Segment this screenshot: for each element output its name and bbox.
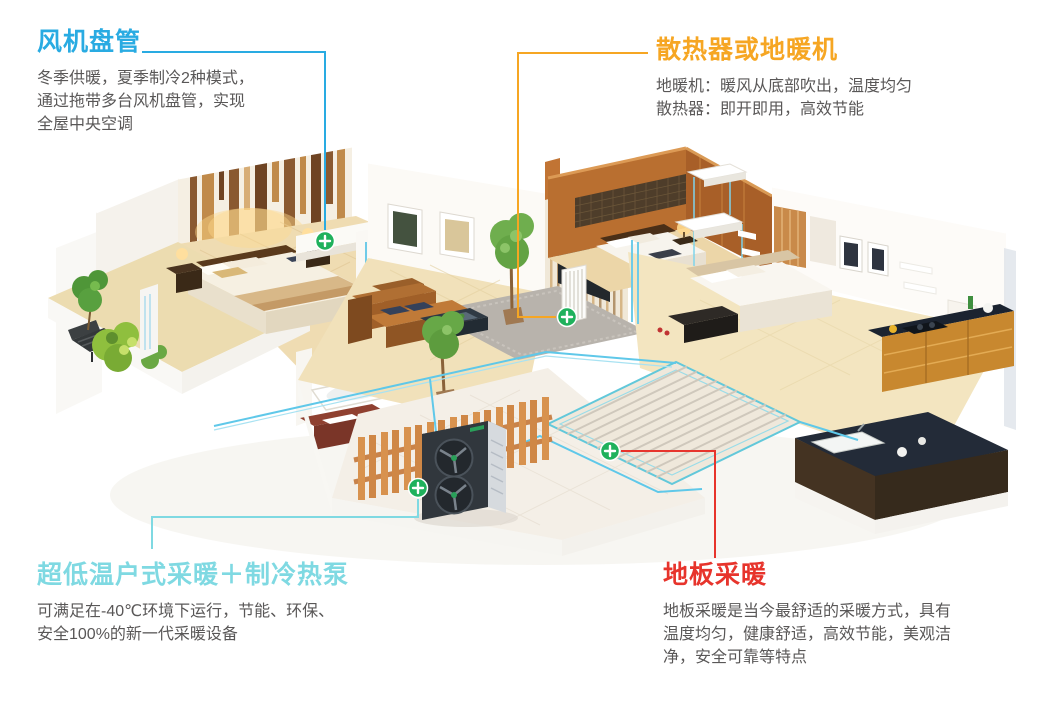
- fan-bottom: [436, 477, 473, 514]
- heat-pump-desc-line2: 安全100%的新一代采暖设备: [37, 623, 349, 646]
- hotspot-marker-floor-heating[interactable]: [601, 442, 620, 461]
- fan-coil-desc-line2: 通过拖带多台风机盘管，实现: [37, 90, 254, 113]
- radiator-title: 散热器或地暖机: [656, 38, 912, 63]
- floor-heating-desc-line3: 净，安全可靠等特点: [663, 646, 951, 669]
- floor-heating-desc-line2: 温度均匀，健康舒适，高效节能，美观洁: [663, 623, 951, 646]
- annotation-fan-coil: 风机盘管 冬季供暖，夏季制冷2种模式， 通过拖带多台风机盘管，实现 全屋中央空调: [37, 30, 254, 136]
- hotspot-marker-heat-pump[interactable]: [409, 479, 428, 498]
- fan-top: [436, 440, 473, 477]
- fan-coil-desc-line3: 全屋中央空调: [37, 113, 254, 136]
- radiator-desc-line1: 地暖机：暖风从底部吹出，温度均匀: [656, 75, 912, 98]
- bottle: [968, 296, 973, 309]
- fan-coil-desc-line1: 冬季供暖，夏季制冷2种模式，: [37, 67, 254, 90]
- floor-heating-title: 地板采暖: [663, 563, 951, 588]
- page-root: { "page": { "background": "#ffffff", "wi…: [0, 0, 1042, 710]
- fan-coil-title: 风机盘管: [37, 30, 254, 55]
- heat-pump-desc-line1: 可满足在-40℃环境下运行，节能、环保、: [37, 600, 349, 623]
- annotation-heat-pump: 超低温户式采暖＋制冷热泵 可满足在-40℃环境下运行，节能、环保、 安全100%…: [37, 563, 349, 646]
- floor-heating-desc-line1: 地板采暖是当今最舒适的采暖方式，具有: [663, 600, 951, 623]
- fruit-bowl: [889, 325, 897, 333]
- annotation-floor-heating: 地板采暖 地板采暖是当今最舒适的采暖方式，具有 温度均匀，健康舒适，高效节能，美…: [663, 563, 951, 669]
- hotspot-marker-radiator[interactable]: [558, 308, 577, 327]
- heat-pump-title: 超低温户式采暖＋制冷热泵: [37, 563, 349, 588]
- annotation-radiator: 散热器或地暖机 地暖机：暖风从底部吹出，温度均匀 散热器：即开即用，高效节能: [656, 38, 912, 121]
- radiator-desc-line2: 散热器：即开即用，高效节能: [656, 98, 912, 121]
- heat-pump-unit: [414, 421, 518, 527]
- hotspot-marker-fan-coil[interactable]: [316, 232, 335, 251]
